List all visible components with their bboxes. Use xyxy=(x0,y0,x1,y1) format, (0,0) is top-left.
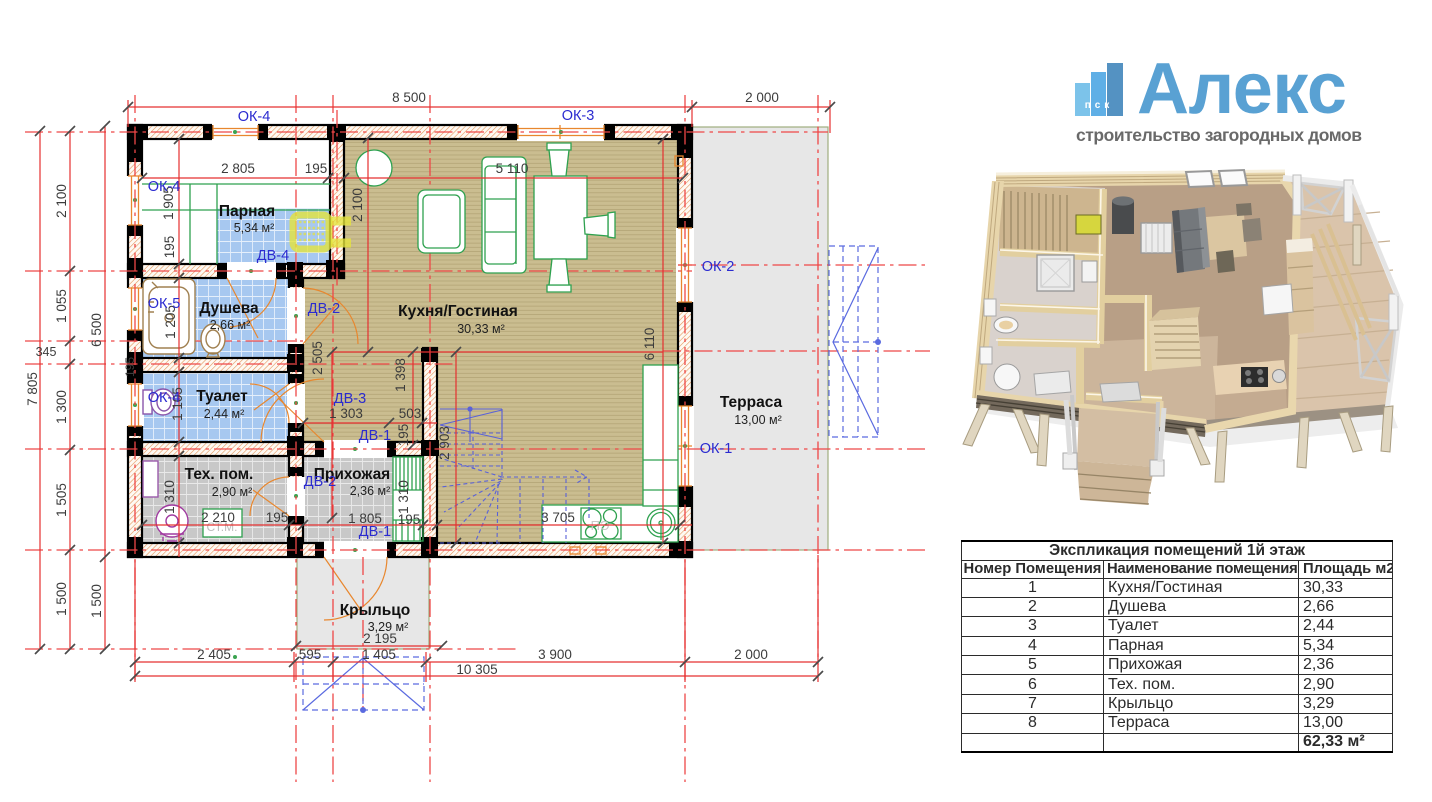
svg-text:7 805: 7 805 xyxy=(25,372,40,406)
svg-text:195: 195 xyxy=(396,424,411,447)
svg-text:503: 503 xyxy=(399,406,422,421)
svg-text:195: 195 xyxy=(266,510,289,525)
svg-text:595: 595 xyxy=(299,647,322,662)
svg-text:2,66 м²: 2,66 м² xyxy=(210,318,251,332)
svg-text:1 500: 1 500 xyxy=(89,584,104,618)
svg-text:13,00 м²: 13,00 м² xyxy=(734,413,782,427)
svg-text:1 310: 1 310 xyxy=(396,480,411,514)
svg-text:8 500: 8 500 xyxy=(392,90,426,105)
svg-text:Терраса: Терраса xyxy=(720,394,783,411)
svg-text:Крыльцо: Крыльцо xyxy=(340,602,411,619)
svg-text:5 110: 5 110 xyxy=(496,161,529,176)
svg-text:3 705: 3 705 xyxy=(541,510,575,525)
svg-text:2,36 м²: 2,36 м² xyxy=(350,484,391,498)
svg-text:2 505: 2 505 xyxy=(310,341,325,375)
svg-text:2 405: 2 405 xyxy=(197,647,231,662)
svg-text:Туалет: Туалет xyxy=(196,388,248,405)
svg-text:ОК-3: ОК-3 xyxy=(562,108,595,124)
svg-text:Душева: Душева xyxy=(199,300,259,317)
svg-text:195: 195 xyxy=(162,236,177,259)
svg-text:1 310: 1 310 xyxy=(162,480,177,514)
svg-text:1 303: 1 303 xyxy=(329,406,363,421)
svg-text:ДВ-1: ДВ-1 xyxy=(359,428,391,444)
svg-text:ДВ-1: ДВ-1 xyxy=(359,524,391,540)
svg-text:2 100: 2 100 xyxy=(54,184,69,218)
svg-text:1 300: 1 300 xyxy=(54,390,69,424)
svg-text:Кухня/Гостиная: Кухня/Гостиная xyxy=(398,303,518,320)
svg-text:2,44 м²: 2,44 м² xyxy=(204,407,245,421)
svg-text:6 110: 6 110 xyxy=(642,328,657,361)
svg-text:ОК-4: ОК-4 xyxy=(238,109,271,125)
svg-text:2,90 м²: 2,90 м² xyxy=(212,485,253,499)
svg-text:345: 345 xyxy=(36,345,57,359)
svg-text:10 305: 10 305 xyxy=(456,662,497,677)
svg-text:1 505: 1 505 xyxy=(54,483,69,517)
svg-text:2 805: 2 805 xyxy=(221,161,255,176)
svg-text:1 398: 1 398 xyxy=(393,358,408,392)
svg-text:2 100: 2 100 xyxy=(350,188,365,222)
svg-text:2 903: 2 903 xyxy=(437,426,452,460)
svg-text:ОК-1: ОК-1 xyxy=(700,441,733,457)
svg-text:3,29 м²: 3,29 м² xyxy=(368,620,409,634)
svg-text:195: 195 xyxy=(123,357,137,377)
svg-text:Тех. пом.: Тех. пом. xyxy=(185,466,254,483)
svg-text:Парная: Парная xyxy=(219,203,275,220)
svg-text:ДВ-2: ДВ-2 xyxy=(308,301,340,317)
svg-text:6 500: 6 500 xyxy=(89,313,104,347)
svg-text:30,33 м²: 30,33 м² xyxy=(457,322,505,336)
svg-text:ДВ-2: ДВ-2 xyxy=(304,474,336,490)
svg-text:5,34 м²: 5,34 м² xyxy=(234,221,275,235)
svg-text:ОК-5: ОК-5 xyxy=(148,296,181,312)
svg-text:ДВ-3: ДВ-3 xyxy=(334,391,366,407)
svg-text:ОК-4: ОК-4 xyxy=(148,390,181,406)
svg-text:195: 195 xyxy=(305,161,328,176)
svg-text:2 210: 2 210 xyxy=(201,510,235,525)
svg-text:ОК-2: ОК-2 xyxy=(702,259,735,275)
svg-text:1 055: 1 055 xyxy=(54,289,69,323)
svg-text:2 000: 2 000 xyxy=(745,90,779,105)
svg-text:1 500: 1 500 xyxy=(54,582,69,616)
svg-text:ДВ-4: ДВ-4 xyxy=(257,248,289,264)
svg-text:3 900: 3 900 xyxy=(538,647,572,662)
svg-text:1 405: 1 405 xyxy=(362,647,396,662)
svg-text:2 000: 2 000 xyxy=(734,647,768,662)
svg-text:ОК-4: ОК-4 xyxy=(148,179,181,195)
